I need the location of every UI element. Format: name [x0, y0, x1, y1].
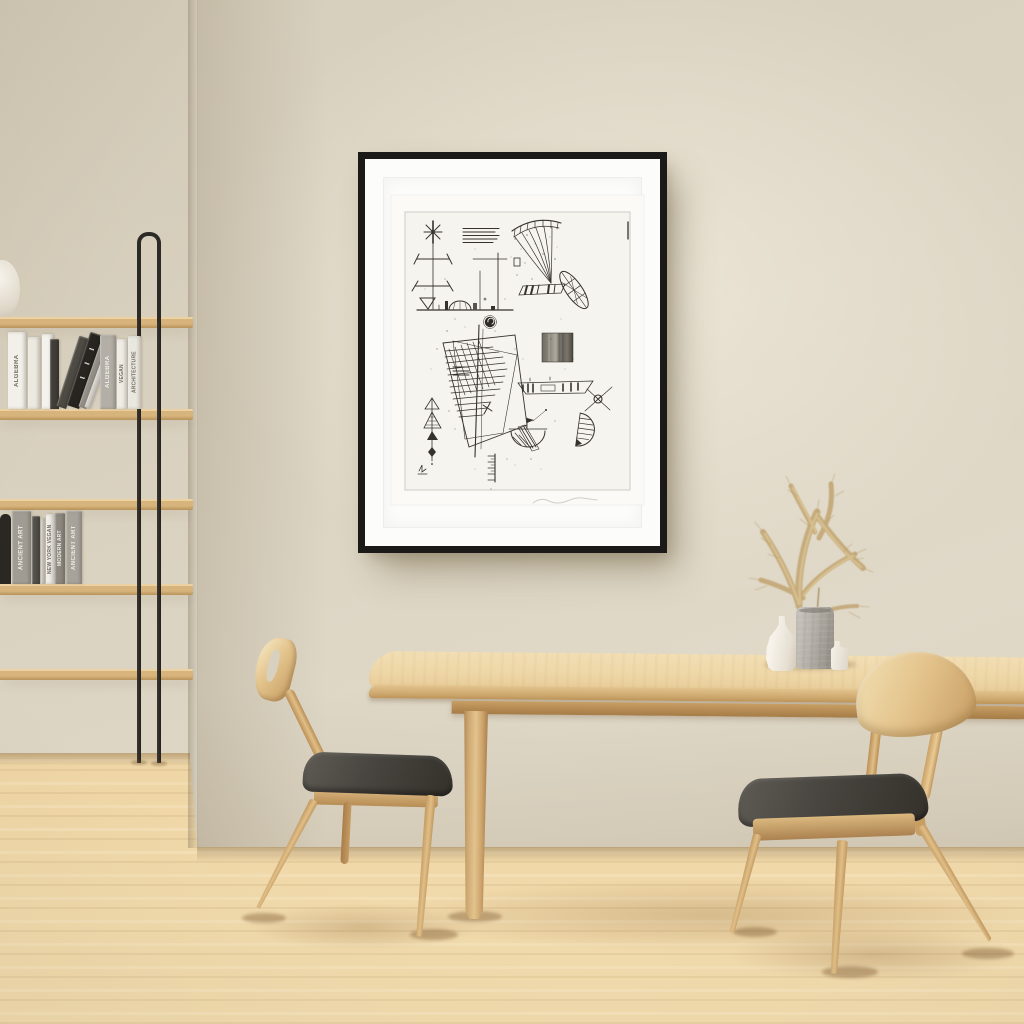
concrete-vase [796, 607, 834, 669]
chair-seat-cushion [302, 751, 453, 796]
concrete-vase-rim [799, 608, 831, 613]
interior-scene: ALGEBRA ALGEBRA VEGAN ARCHITECTURE ANCIE… [0, 0, 1024, 1024]
table-leg-left [461, 711, 490, 919]
